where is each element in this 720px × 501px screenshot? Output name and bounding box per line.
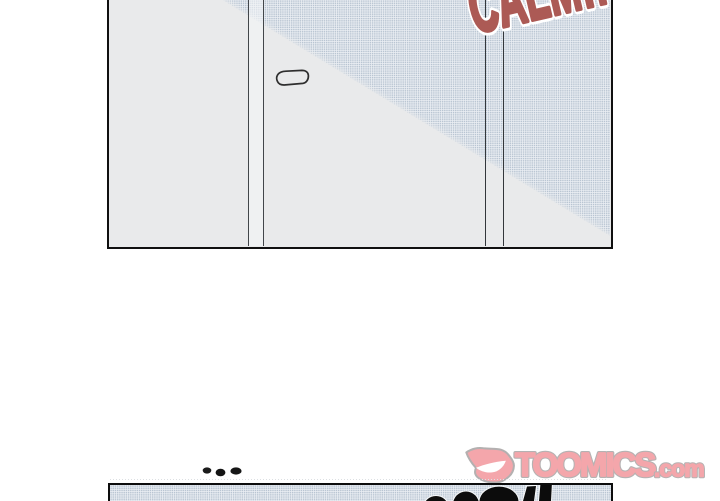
- svg-text:CALM!!!: CALM!!!: [460, 0, 612, 48]
- svg-text:TOOMICS: TOOMICS: [515, 446, 655, 483]
- svg-text:.com: .com: [654, 456, 704, 482]
